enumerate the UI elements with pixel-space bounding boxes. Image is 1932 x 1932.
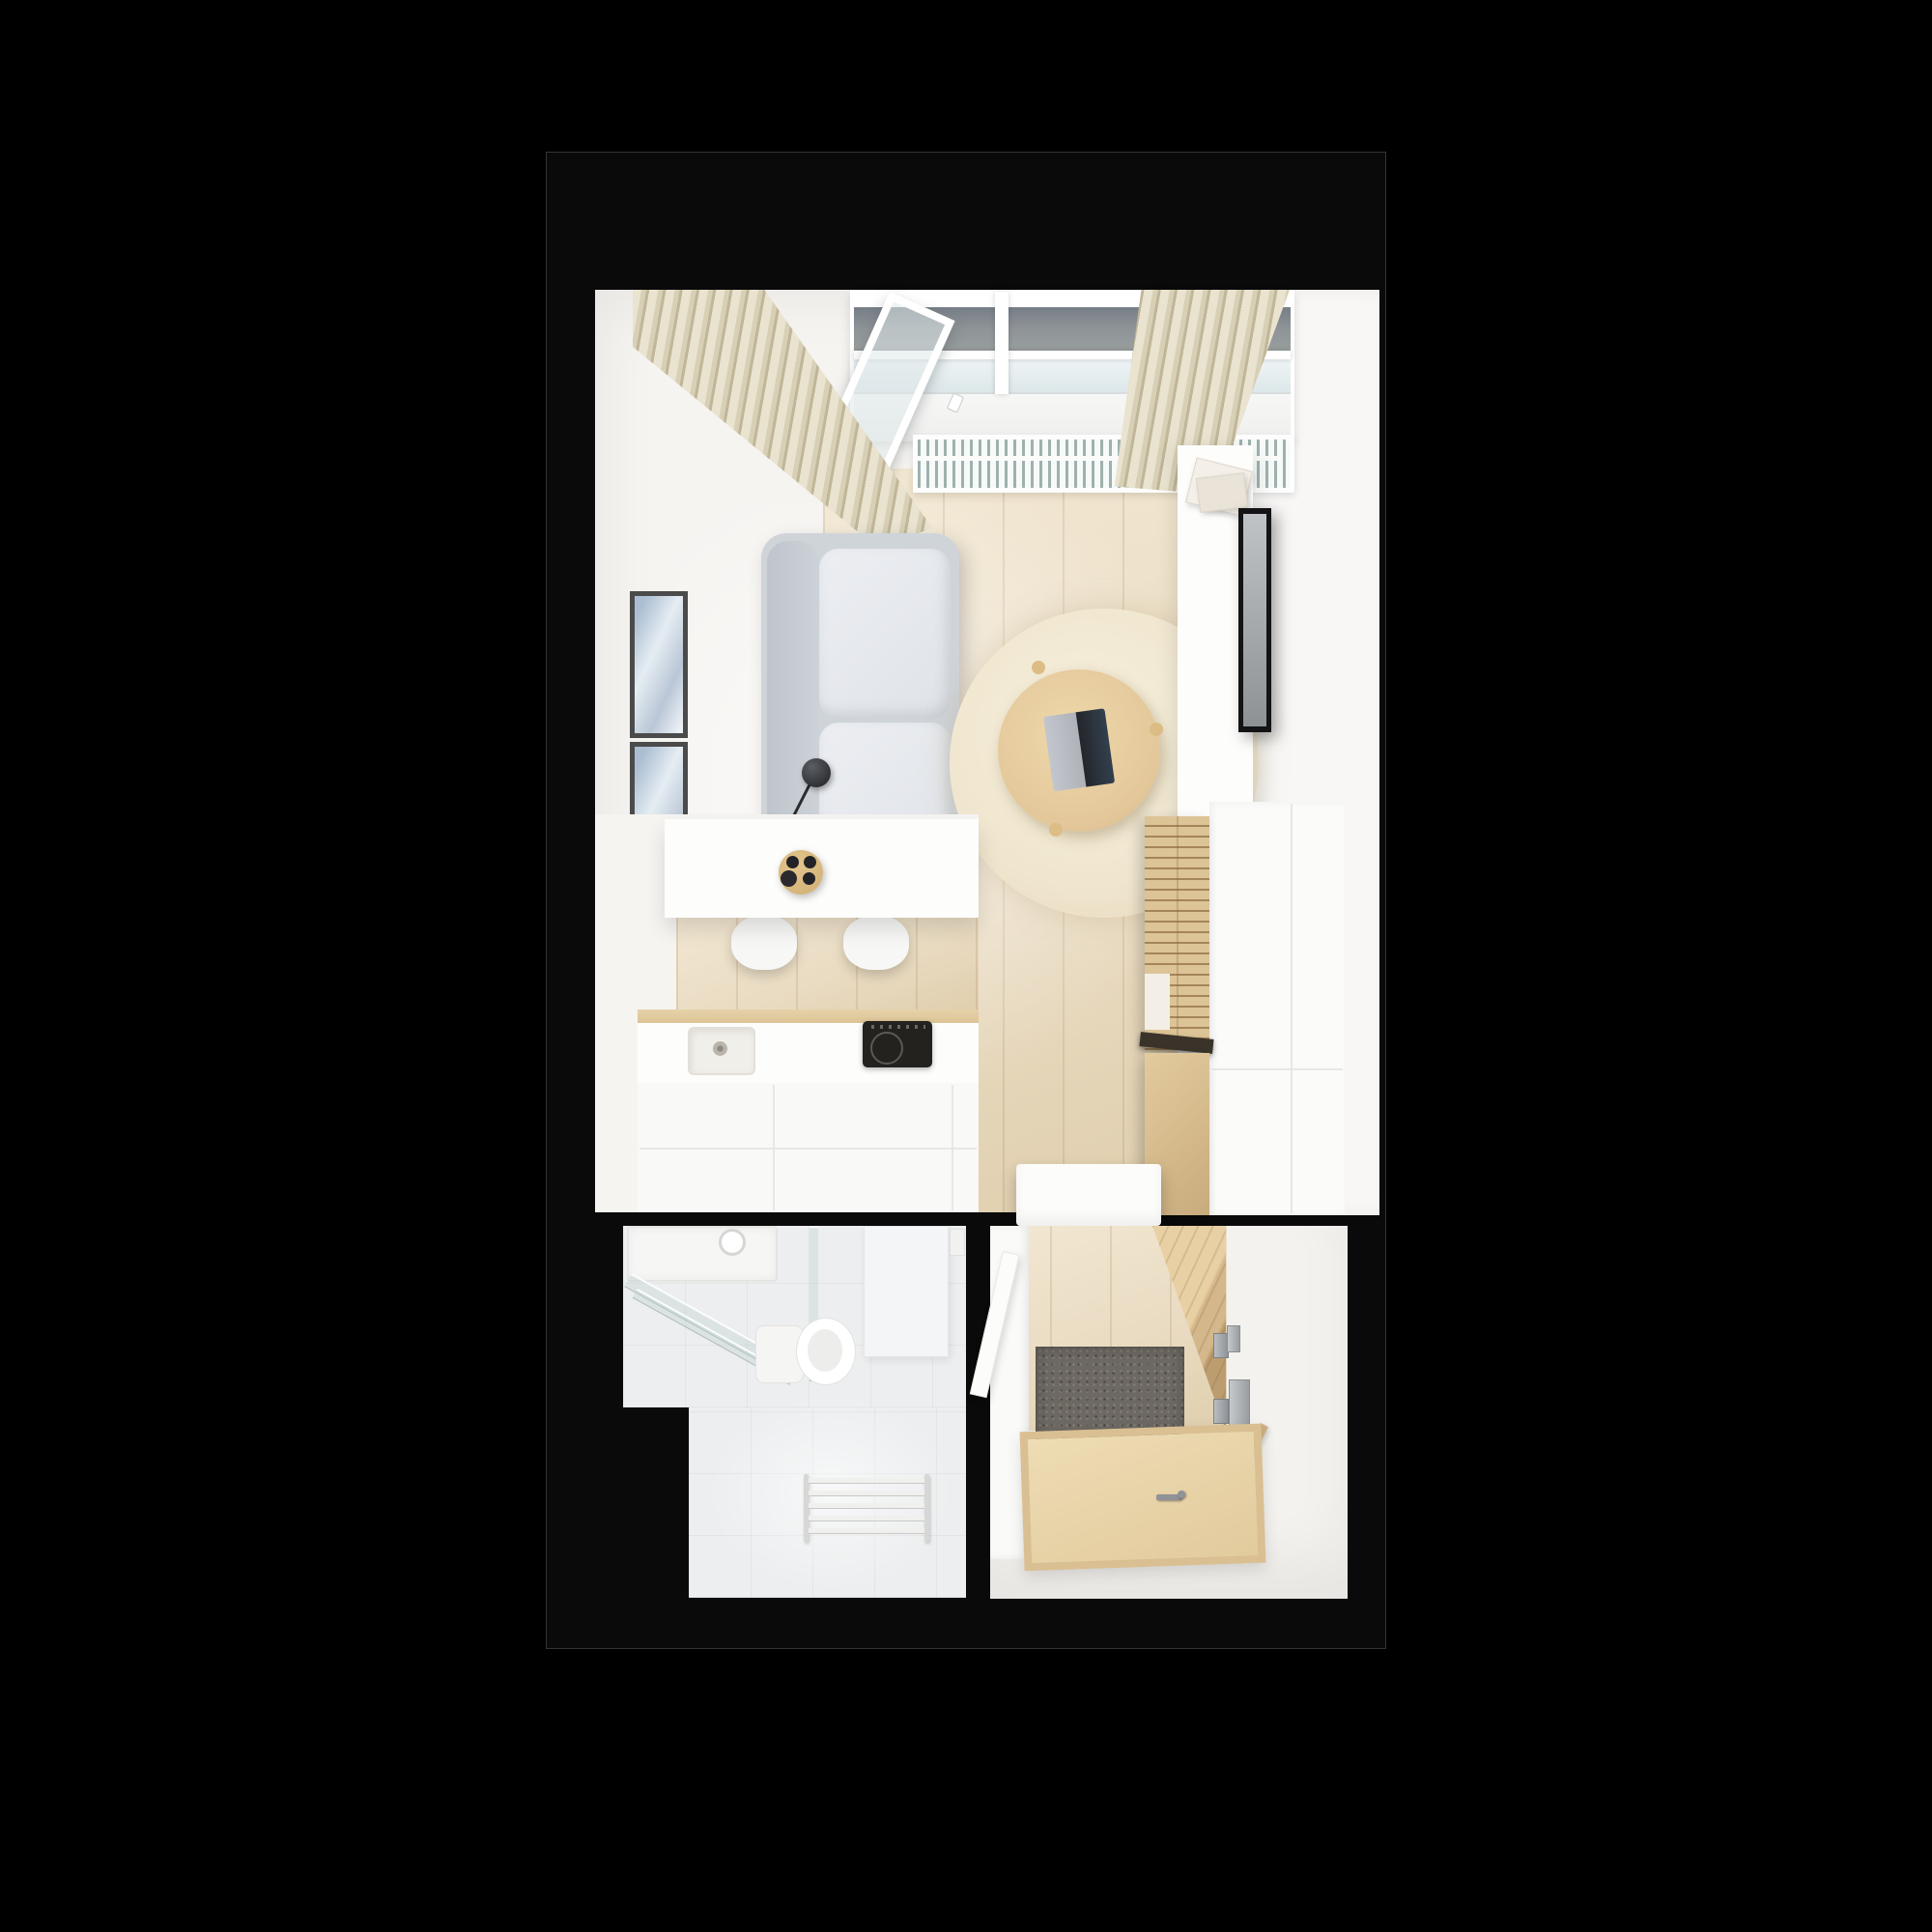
- towel-radiator-rungs: [809, 1478, 924, 1539]
- espresso-cup-1: [786, 856, 799, 868]
- espresso-pot: [781, 870, 797, 887]
- magazine-top: [1196, 472, 1248, 513]
- espresso-cup-3: [803, 872, 815, 885]
- storage-bench: [1016, 1164, 1161, 1226]
- door-hinge-2: [1213, 1399, 1229, 1424]
- cabinet-seam-horizontal: [1211, 1068, 1343, 1070]
- sofa-cushion-1: [819, 549, 951, 719]
- espresso-cup-2: [804, 856, 816, 868]
- landing-handle-knob: [1178, 1491, 1185, 1498]
- kitchen-wood-strip: [676, 918, 979, 1010]
- cooktop-controls: [871, 1025, 925, 1029]
- bar-stool-1: [731, 916, 797, 970]
- bath-mat: [864, 1226, 949, 1357]
- floor-lamp-head: [802, 758, 831, 787]
- shower-head: [719, 1229, 746, 1256]
- floorplan-stage: [0, 0, 1932, 1932]
- cabinet-seam-vertical: [1291, 804, 1293, 1213]
- shower-tray: [627, 1226, 778, 1282]
- bar-stool-2: [843, 916, 909, 970]
- table-leg-peg-3: [1049, 823, 1063, 837]
- wardrobe-slat-notch: [1145, 974, 1170, 1030]
- towel-radiator-rail-right: [924, 1474, 929, 1542]
- table-leg-peg-1: [1032, 661, 1045, 674]
- wardrobe-side-cabinet: [1209, 802, 1345, 1215]
- toilet-bowl-inner: [808, 1329, 842, 1372]
- paper-holder: [950, 1229, 965, 1256]
- window-mullion-1: [995, 292, 1009, 394]
- tv-screen: [1243, 514, 1266, 726]
- sink-drain: [713, 1041, 727, 1056]
- entry-landing: [1020, 1424, 1266, 1572]
- wall-art-frame-1: [630, 591, 688, 738]
- cabinet-front-seam-3: [639, 1148, 977, 1150]
- latch-plate: [1227, 1325, 1240, 1352]
- cooktop-ring: [870, 1032, 903, 1065]
- table-leg-peg-2: [1150, 723, 1163, 736]
